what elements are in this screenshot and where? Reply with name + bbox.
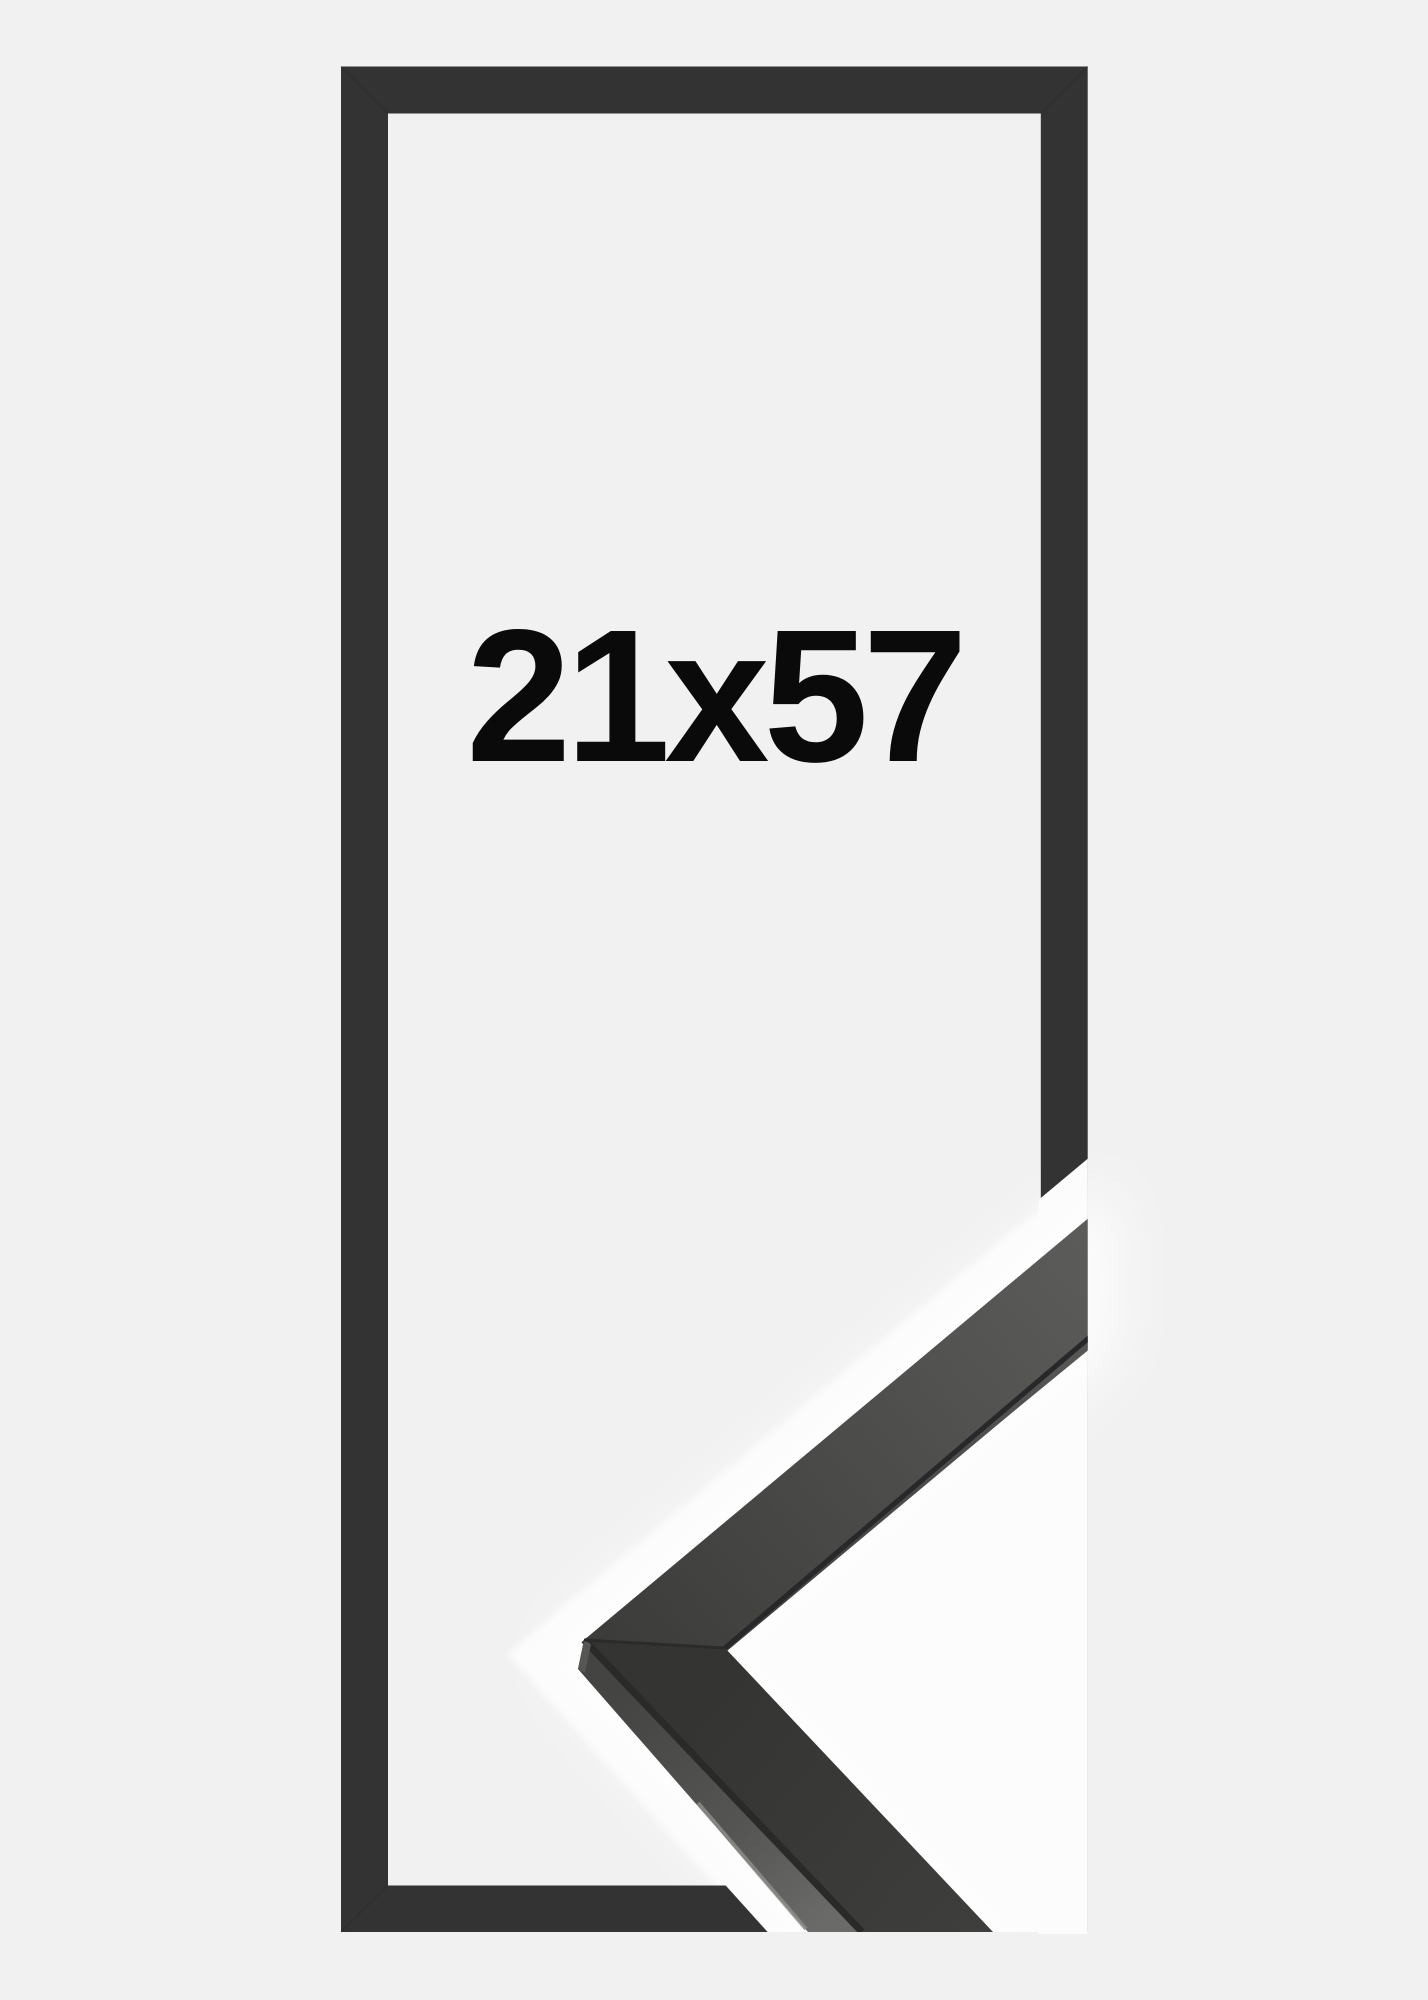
svg-text:21x57: 21x57 [466,591,962,802]
